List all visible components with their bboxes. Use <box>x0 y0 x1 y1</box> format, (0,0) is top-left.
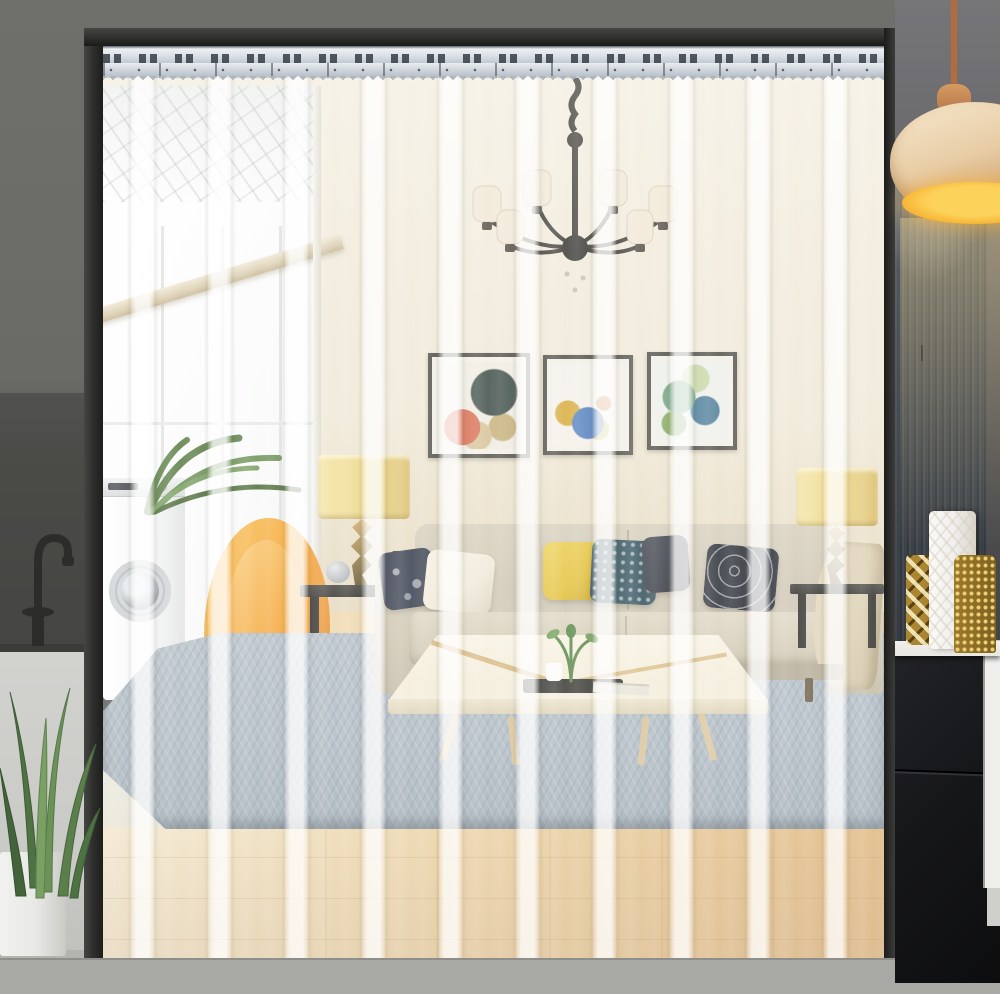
table-lamp-right-base <box>826 526 846 584</box>
open-shelf <box>983 648 1000 888</box>
coffee-table-leg <box>698 713 718 761</box>
coffee-table <box>388 635 768 765</box>
strip-curtain-rail <box>103 46 884 78</box>
living-room-scene <box>103 78 884 962</box>
wall-art-right-canvas <box>656 361 728 441</box>
rail-scalloped-edge <box>103 76 884 83</box>
coffee-table-leg <box>638 717 650 765</box>
coffee-table-leg <box>508 717 520 765</box>
side-table-leg <box>868 594 876 648</box>
wall-art-middle <box>543 355 633 455</box>
gold-honeycomb-vase <box>954 555 996 653</box>
snake-plant <box>0 648 104 960</box>
side-table-right <box>790 468 884 648</box>
washer-door <box>109 560 171 622</box>
glass-roof-lattice <box>103 86 315 202</box>
doorway-opening <box>103 46 884 962</box>
silver-ornament <box>326 561 350 583</box>
right-side <box>895 0 1000 994</box>
pillow-cream <box>422 549 496 616</box>
rail-top-edge <box>103 46 884 49</box>
fern-plant <box>129 424 309 516</box>
wall-art-left <box>428 353 530 458</box>
wall-art-left-canvas <box>437 362 521 449</box>
pillow-dark <box>641 534 691 593</box>
side-table-right-top <box>790 584 884 594</box>
product-photo <box>0 0 1000 994</box>
kitchen-faucet-icon <box>8 492 78 650</box>
table-lamp-left-base <box>350 519 374 587</box>
pendant-cord <box>951 0 957 92</box>
lamp-glow-beam <box>900 218 1000 548</box>
sofa-leg <box>805 678 813 702</box>
pillow-scribble-pattern <box>702 543 779 613</box>
chandelier <box>445 78 705 358</box>
side-table-leg <box>798 594 806 648</box>
door-frame-top <box>84 28 895 46</box>
centerpiece-plant <box>536 621 606 683</box>
coffee-table-leg <box>440 713 460 761</box>
coffee-table-edge <box>388 699 768 714</box>
wall-art-middle-canvas <box>552 364 624 446</box>
outside-floor <box>0 958 1000 994</box>
table-lamp-left-shade <box>318 455 410 519</box>
washer-door-glass <box>121 572 159 610</box>
wall-art-right <box>647 352 737 450</box>
table-lamp-right-shade <box>796 468 878 526</box>
rail-hook-slots <box>103 54 884 63</box>
